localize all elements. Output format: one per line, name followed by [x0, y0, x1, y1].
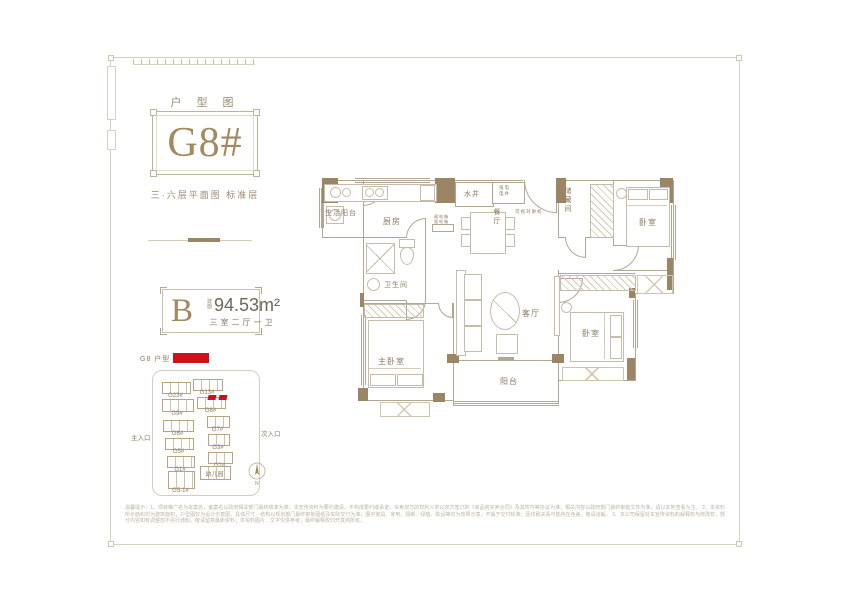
wall-pier [627, 358, 635, 380]
site-building-label: G6# [172, 431, 183, 437]
burner [375, 188, 384, 197]
frame-tick-marks [133, 59, 255, 65]
frame-corner [736, 55, 742, 61]
frame-corner [108, 541, 114, 547]
frame-corner [108, 55, 114, 61]
divider-accent [188, 238, 220, 242]
site-legend-label: G8 户型 [140, 354, 170, 364]
site-building-label: G7# [212, 427, 223, 433]
sliding-door-handle [498, 357, 514, 361]
room-label: 餐厅 [491, 208, 501, 226]
unit-type-letter: B [171, 295, 193, 328]
compass-icon: N [248, 462, 266, 480]
storage-shelves [590, 184, 614, 238]
compass-north-label: N [255, 481, 259, 487]
wall [613, 270, 673, 271]
blanket-line [369, 368, 421, 369]
nightstand [616, 188, 627, 199]
room-label: 生活阳台 [325, 208, 357, 218]
meter-box [432, 224, 454, 232]
wardrobe [560, 275, 636, 291]
site-building [168, 471, 195, 489]
kitchen-door-leaf [425, 218, 426, 237]
crop-mark [160, 328, 167, 335]
main-entrance-label: 主入口 [131, 432, 151, 442]
kitchen-sink [342, 188, 351, 197]
room-label: 储藏间 [562, 187, 572, 214]
crop-mark [160, 287, 167, 294]
window [633, 300, 638, 348]
nightstand [561, 302, 572, 313]
wardrobe [364, 304, 424, 318]
sofa-seat [464, 326, 482, 352]
room-label: 强电箱 [434, 219, 449, 225]
area-value: 94.53m² [214, 295, 280, 316]
room-label: 卫生间 [384, 280, 408, 290]
room-label: 主卧室 [378, 356, 405, 367]
ac-platform [637, 275, 673, 294]
ac-platform [380, 402, 430, 417]
wall [322, 237, 406, 238]
crop-mark [255, 287, 262, 294]
room-label: 电井 [499, 191, 510, 197]
chair [461, 234, 471, 247]
room-label: 可视对讲机 [515, 209, 543, 215]
wall [363, 300, 406, 301]
site-building-label: G9# [171, 411, 182, 417]
site-building-label: G8# [205, 408, 216, 414]
wall-pier [552, 354, 564, 363]
wall [558, 273, 635, 274]
frame-ornament [150, 170, 157, 177]
sofa-seat [464, 300, 482, 326]
fridge [420, 185, 435, 201]
unit-info-card: B 建面 94.53m² 三室二厅一卫 [162, 289, 260, 333]
shower [366, 243, 395, 274]
site-legend-swatch [173, 353, 209, 363]
window [671, 205, 676, 260]
master-door-leaf [452, 303, 453, 317]
rooms-description: 三室二厅一卫 [210, 317, 276, 328]
sofa-seat [464, 274, 482, 300]
coffee-table [490, 292, 520, 330]
wall [558, 237, 565, 238]
site-plan: G8 户型 G23#G13#G9#G8#G6#G7#G5#G3#G1#G2#G5… [135, 352, 285, 510]
frame-ornament [253, 109, 260, 116]
storage-door-arc [565, 237, 586, 258]
armchair [496, 334, 518, 354]
area-label: 建面 [205, 300, 214, 310]
site-building-label: 幼儿园 [205, 469, 223, 478]
burner [365, 188, 374, 197]
kitchen-window [355, 178, 430, 183]
blanket-line [604, 313, 605, 359]
chair [505, 234, 515, 247]
wall-pier [433, 393, 445, 402]
site-building-label: G5-1# [172, 488, 189, 494]
page-title: 户 型 图 [150, 94, 260, 110]
frame-side-ornament [107, 66, 116, 120]
wall [453, 303, 454, 400]
pillow [397, 374, 423, 386]
chair [505, 217, 515, 230]
storage-door-leaf [585, 237, 586, 257]
floor-subtitle: 三·六层平面图 标准层 [138, 188, 272, 201]
pillow [370, 374, 396, 386]
frame-corner [736, 541, 742, 547]
room-label: 阳台 [500, 376, 518, 387]
room-label: 卧室 [639, 217, 657, 228]
wall-pier [435, 178, 455, 203]
unit-name-frame: G8# [152, 111, 258, 175]
kitchen-sink [330, 187, 341, 198]
balcony-window [453, 401, 559, 406]
site-building-label: G3# [212, 445, 223, 451]
unit-name: G8# [167, 119, 242, 167]
room-label: 客厅 [522, 308, 540, 319]
bedroom1-door-arc [613, 245, 639, 271]
highlighted-unit [218, 395, 227, 400]
window [361, 315, 366, 385]
pillow [610, 315, 622, 337]
blanket-line [627, 205, 667, 206]
wall-pier [358, 388, 368, 401]
pillow [610, 337, 622, 359]
crop-mark [255, 328, 262, 335]
ac-platform [562, 367, 624, 381]
disclaimer-text: 温馨提示：1、项目推广名为本案名，备案名以政府相关部门最终核准为准；本宣传资料为… [125, 505, 725, 525]
room-label: 水井 [464, 189, 480, 199]
highlighted-unit [207, 395, 216, 400]
floor-plan: 生活阳台厨房水井强电电井可视对讲机餐厅储藏间卧室弱电箱强电箱卫生间客厅主卧室卧室… [310, 160, 702, 460]
pillow [649, 189, 668, 200]
kitchen-door-arc [406, 218, 426, 238]
wall [425, 237, 426, 300]
bathroom-sink [367, 278, 380, 291]
frame-side-ornament-2 [107, 130, 116, 150]
room-label: 卧室 [582, 328, 600, 339]
master-door-arc [438, 303, 453, 318]
frame-ornament [253, 170, 260, 177]
toilet [400, 247, 414, 265]
room-label: 厨房 [383, 216, 401, 227]
site-building-label: G5# [173, 449, 184, 455]
chair [461, 217, 471, 230]
pillow [628, 189, 648, 200]
secondary-entrance-label: 次入口 [261, 428, 281, 438]
